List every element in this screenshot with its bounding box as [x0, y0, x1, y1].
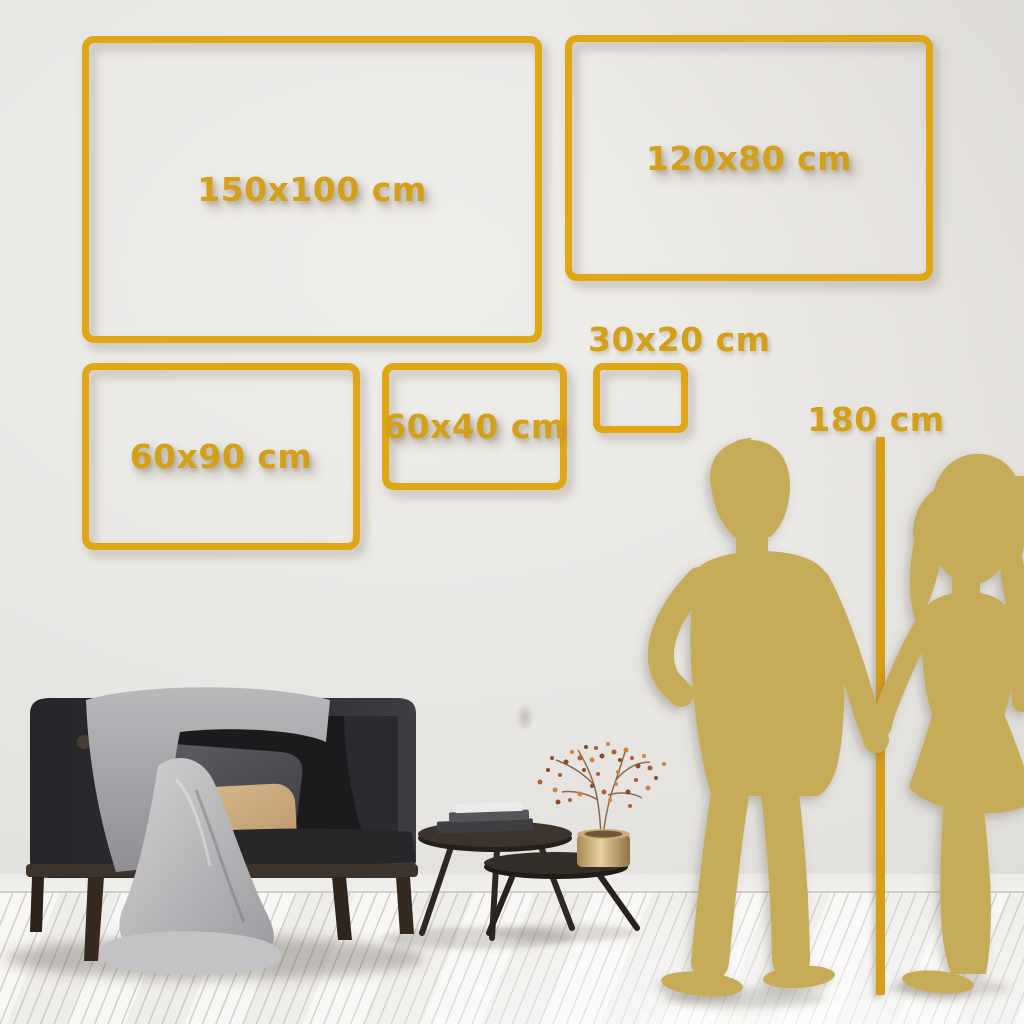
woman-silhouette	[870, 454, 1024, 997]
size-frame-150x100: 150x100 cm	[82, 36, 542, 343]
size-label-60x40: 60x40 cm	[383, 407, 566, 446]
size-frame-60x40: 60x40 cm	[382, 363, 567, 490]
size-frame-60x90: 60x90 cm	[82, 363, 360, 550]
size-label-120x80: 120x80 cm	[646, 139, 852, 178]
size-label-30x20: 30x20 cm	[588, 320, 808, 359]
size-label-150x100: 150x100 cm	[197, 170, 427, 209]
size-frame-120x80: 120x80 cm	[565, 35, 933, 281]
size-frame-30x20	[593, 363, 688, 433]
size-guide-image: 180 cm	[0, 0, 1024, 1024]
man-silhouette	[660, 438, 889, 1000]
size-label-60x90: 60x90 cm	[130, 437, 313, 476]
